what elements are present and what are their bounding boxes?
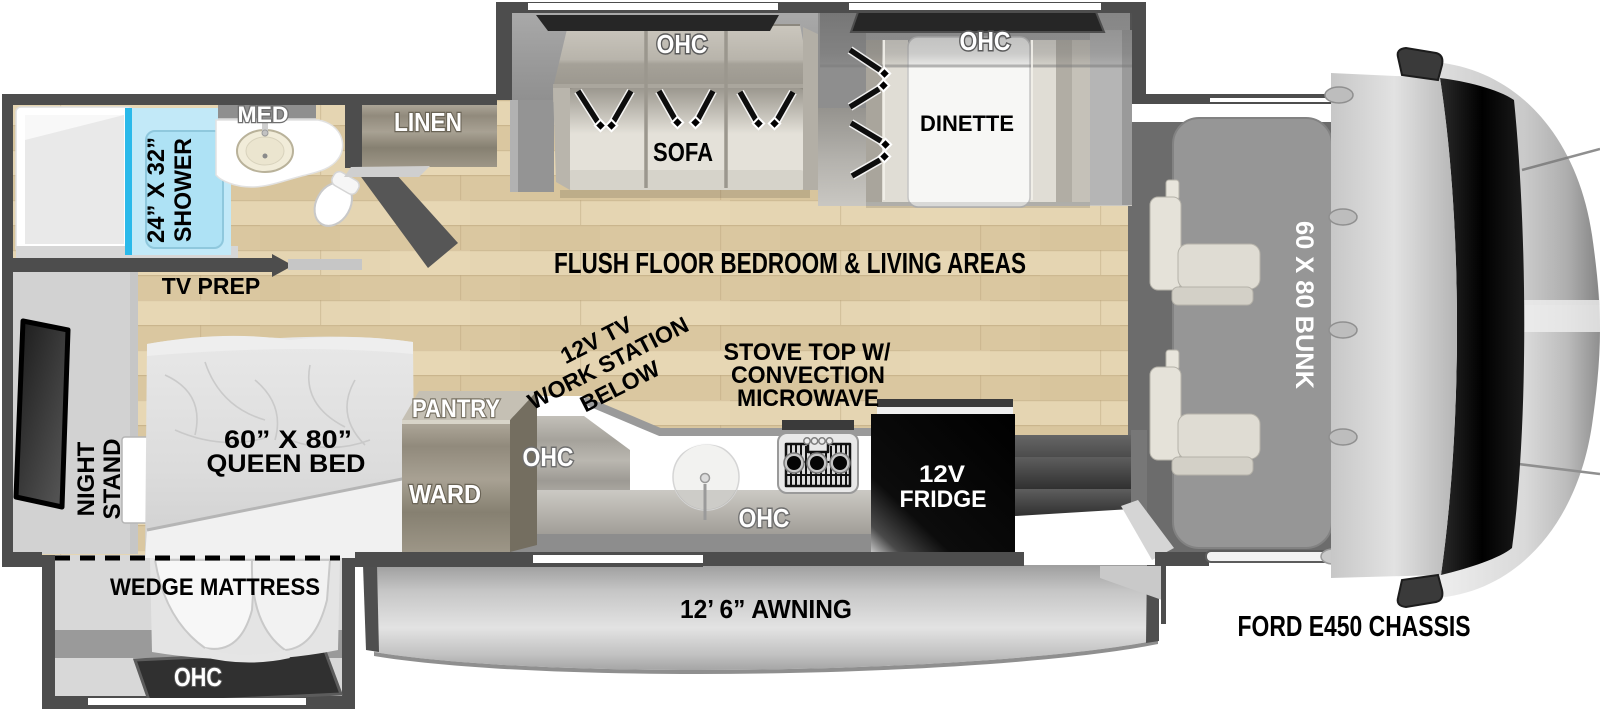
svg-text:12’ 6” AWNING: 12’ 6” AWNING bbox=[680, 594, 852, 624]
svg-text:24” X 32”: 24” X 32” bbox=[143, 137, 170, 243]
svg-text:12V: 12V bbox=[919, 461, 965, 488]
svg-text:MICROWAVE: MICROWAVE bbox=[737, 385, 879, 412]
svg-text:WEDGE MATTRESS: WEDGE MATTRESS bbox=[110, 574, 320, 601]
svg-text:OHC: OHC bbox=[960, 26, 1011, 56]
svg-text:SHOWER: SHOWER bbox=[170, 138, 197, 242]
svg-text:MED: MED bbox=[238, 102, 289, 127]
svg-text:PANTRY: PANTRY bbox=[412, 395, 500, 423]
svg-text:OHC: OHC bbox=[523, 442, 574, 472]
svg-text:OHC: OHC bbox=[657, 29, 708, 59]
svg-text:OHC: OHC bbox=[739, 503, 790, 533]
svg-text:OHC: OHC bbox=[174, 662, 222, 692]
svg-text:NIGHT: NIGHT bbox=[73, 441, 100, 516]
svg-text:DINETTE: DINETTE bbox=[920, 111, 1014, 136]
svg-text:LINEN: LINEN bbox=[394, 107, 462, 137]
svg-text:WARD: WARD bbox=[409, 479, 481, 509]
svg-text:FLUSH FLOOR BEDROOM & LIVING A: FLUSH FLOOR BEDROOM & LIVING AREAS bbox=[554, 248, 1026, 280]
svg-text:QUEEN BED: QUEEN BED bbox=[207, 450, 366, 478]
svg-text:SOFA: SOFA bbox=[653, 137, 713, 167]
svg-text:STAND: STAND bbox=[99, 439, 126, 520]
svg-text:TV PREP: TV PREP bbox=[162, 273, 260, 299]
svg-text:FRIDGE: FRIDGE bbox=[900, 486, 987, 513]
svg-text:FORD E450 CHASSIS: FORD E450 CHASSIS bbox=[1238, 611, 1471, 643]
svg-text:60 X 80 BUNK: 60 X 80 BUNK bbox=[1290, 221, 1318, 389]
